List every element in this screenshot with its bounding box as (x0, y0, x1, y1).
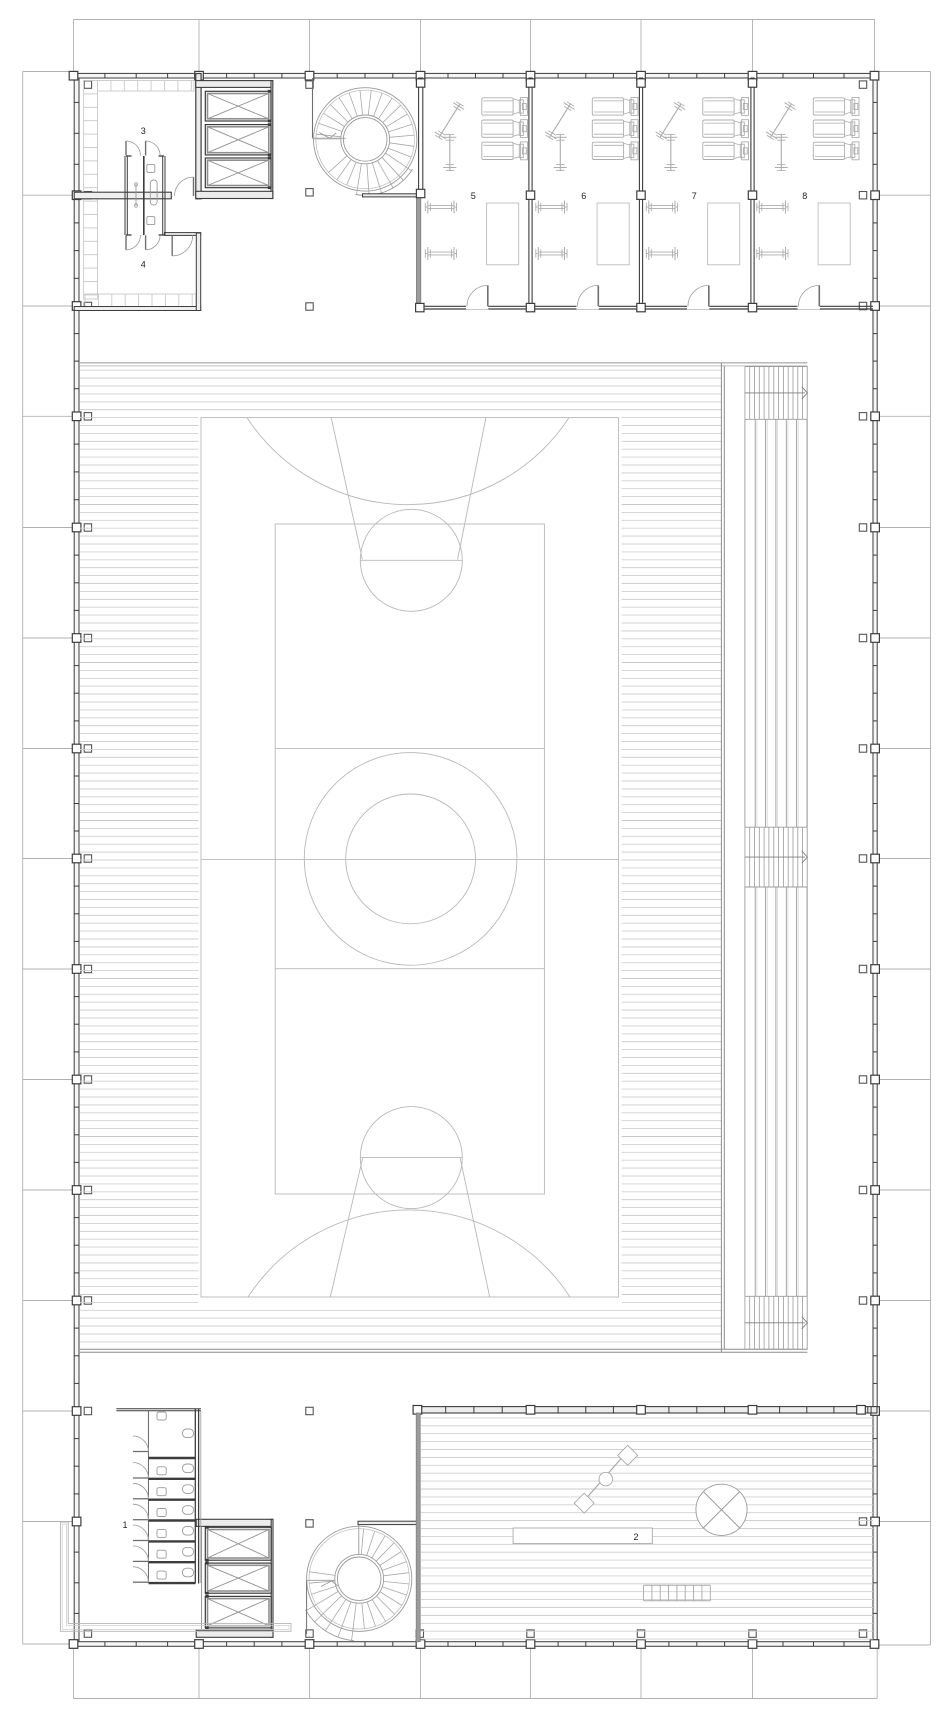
svg-text:2: 2 (633, 1532, 638, 1542)
svg-text:5: 5 (471, 191, 476, 201)
svg-text:6: 6 (581, 191, 586, 201)
svg-text:8: 8 (802, 191, 807, 201)
svg-text:4: 4 (141, 260, 146, 270)
svg-text:3: 3 (141, 126, 146, 136)
svg-text:7: 7 (692, 191, 697, 201)
svg-text:1: 1 (122, 1520, 127, 1530)
